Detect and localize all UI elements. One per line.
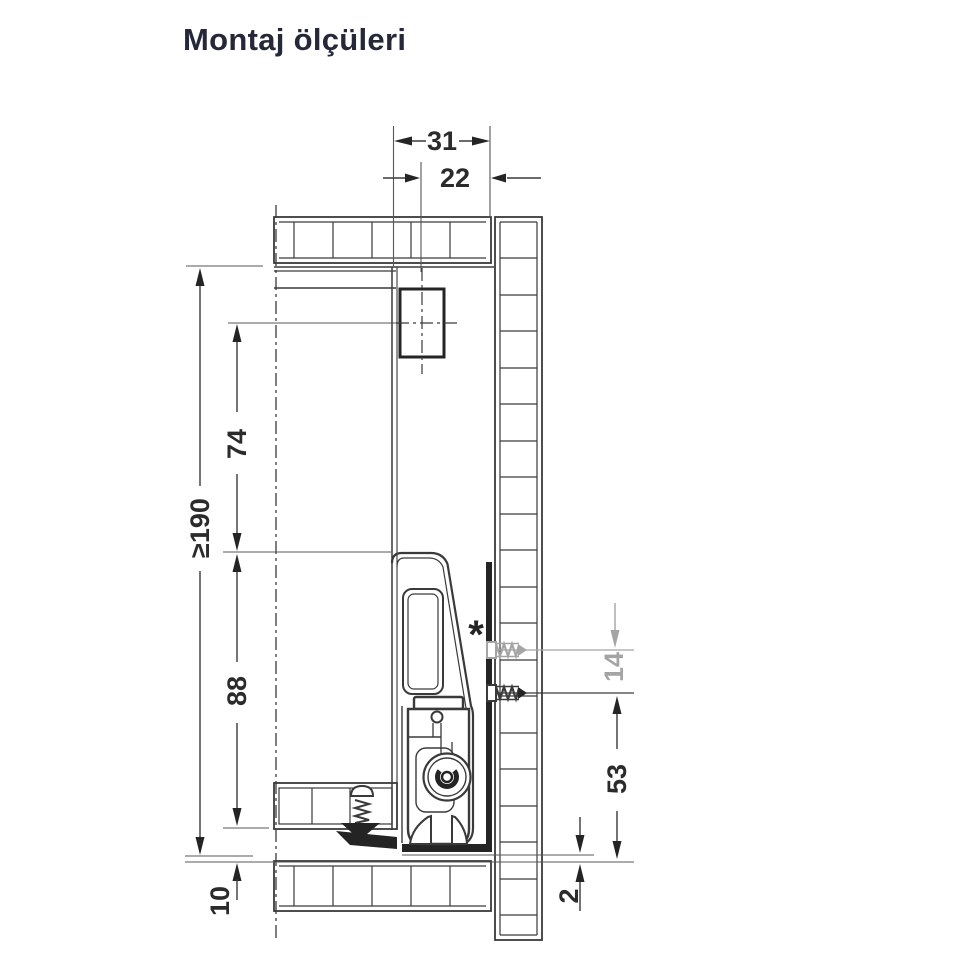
dim-lower-height: 88 [222, 554, 252, 826]
dim-front-offset-value: 22 [440, 163, 470, 193]
dim-upper-height: 74 [222, 324, 252, 551]
dim-top-width: 31 [394, 126, 490, 156]
dim-top-width-value: 31 [427, 126, 457, 156]
technical-drawing: 31 22 ≥190 74 88 10 14 [0, 0, 960, 960]
front-bracket [396, 268, 459, 374]
cabinet-side-panel [495, 217, 542, 940]
dim-hole-height-value: 53 [602, 764, 632, 794]
screw-upper-gray [487, 642, 527, 658]
cabinet-top-panel [274, 217, 491, 263]
asterisk-marker: * [468, 613, 484, 657]
dim-clearance-value: 2 [554, 888, 584, 903]
screw-lower-black [487, 685, 527, 701]
dim-front-offset: 22 [383, 163, 541, 193]
drawer-bottom-panel [274, 783, 397, 829]
roller-mechanism [408, 697, 471, 844]
dim-lower-height-value: 88 [222, 676, 252, 706]
dim-min-height: ≥190 [185, 268, 215, 855]
slide-mounting-tab [486, 562, 492, 852]
dim-min-height-value: ≥190 [185, 498, 215, 558]
cabinet-bottom-panel [274, 861, 491, 911]
dim-upper-height-value: 74 [222, 429, 252, 459]
dim-bottom-offset-value: 10 [205, 886, 235, 916]
dim-hole-height: 53 [602, 696, 632, 859]
top-rail [274, 267, 494, 288]
vertical-screw [336, 786, 397, 849]
dim-hole-gap-value: 14 [599, 652, 629, 682]
dim-bottom-offset: 10 [205, 863, 242, 916]
dim-hole-gap: 14 [599, 603, 629, 682]
dim-clearance: 2 [554, 817, 585, 911]
